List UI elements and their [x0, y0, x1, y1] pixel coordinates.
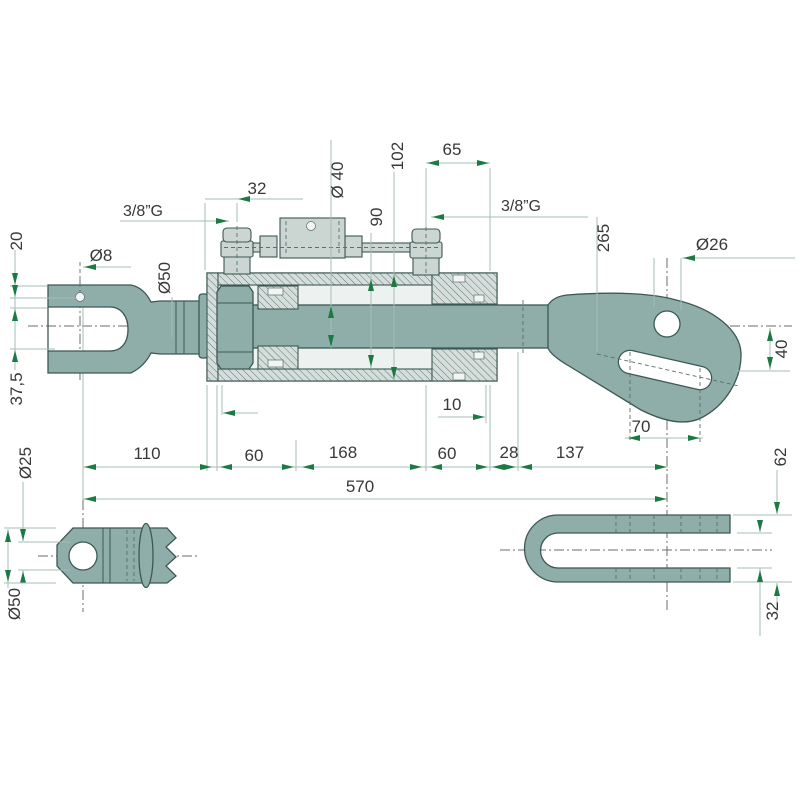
hydraulic-top-link-drawing: 32 3/8”G 3/8”G 65 Ø8 Ø26 10 70 110 60 16… [0, 0, 800, 800]
dim-62-label: 62 [771, 448, 790, 467]
piston-seal-groove [268, 288, 283, 295]
dim-265-label: 265 [594, 224, 613, 252]
port-left-label: 3/8”G [123, 203, 163, 220]
dim-137-label: 137 [556, 443, 584, 462]
dim-65-label: 65 [443, 140, 462, 159]
piston-seal-groove [268, 360, 283, 367]
dim-28-label: 28 [500, 443, 519, 462]
dim-70-label: 70 [632, 417, 651, 436]
dim-102-label: 102 [388, 142, 407, 170]
dim-40-right-label: 40 [772, 340, 791, 359]
dia-8-label: Ø8 [90, 246, 113, 265]
dia-26-label: Ø26 [696, 235, 728, 254]
gland-seal-groove [474, 295, 484, 302]
dim-20-label: 20 [7, 232, 26, 251]
dim-10-label: 10 [443, 395, 462, 414]
gland-seal-groove [453, 275, 465, 282]
fork-pin-hole [76, 293, 85, 302]
technical-drawing-page: 32 3/8”G 3/8”G 65 Ø8 Ø26 10 70 110 60 16… [0, 0, 800, 800]
dim-90-label: 90 [367, 208, 386, 227]
valve-adapter-right [345, 236, 362, 257]
side-view-eye-end [57, 524, 176, 588]
eye-round-hole [654, 311, 680, 337]
hex-nut [217, 286, 253, 369]
dim-37-5-label: 37,5 [7, 372, 26, 405]
piston-rod [252, 305, 557, 348]
main-view [48, 218, 741, 442]
eye-slot [630, 362, 700, 378]
side-view-collar [139, 524, 153, 588]
dia-50-top-label: Ø50 [155, 262, 174, 294]
dim-168-label: 168 [329, 443, 357, 462]
top-view-fork-end [524, 515, 730, 582]
dim-570-label: 570 [346, 477, 374, 496]
u-fork-body [524, 515, 730, 582]
dim-32-top-label: 32 [248, 179, 267, 198]
side-view-pin-hole [69, 542, 97, 570]
dim-60b-label: 60 [438, 444, 457, 463]
port-right-label: 3/8”G [501, 198, 541, 215]
valve-orifice [307, 222, 316, 231]
dia-25-label: Ø25 [16, 447, 35, 479]
cylinder-bottom-wall [218, 369, 432, 381]
valve-adapter-left [260, 236, 277, 257]
dim-32-right-label: 32 [763, 602, 782, 621]
cylinder-top-wall [218, 273, 432, 285]
dim-110-label: 110 [133, 444, 160, 463]
gland-seal-groove [474, 352, 484, 359]
dim-60a-label: 60 [245, 446, 264, 465]
dia-40-label: Ø 40 [328, 162, 347, 199]
dia-50-bottom-label: Ø50 [5, 588, 24, 620]
gland-seal-groove [453, 373, 465, 380]
